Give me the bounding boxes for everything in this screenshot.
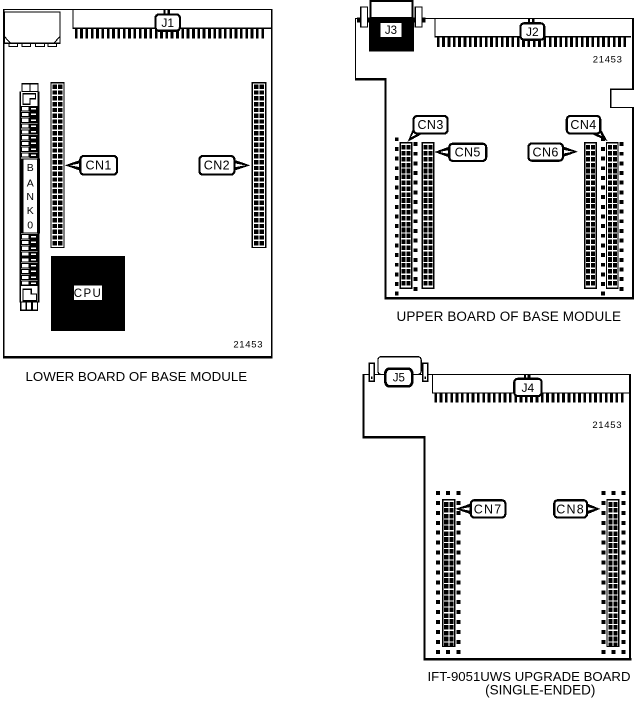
svg-text:0: 0 (27, 220, 33, 232)
svg-text:(SINGLE-ENDED): (SINGLE-ENDED) (485, 683, 595, 698)
svg-text:K: K (27, 205, 34, 217)
svg-text:21453: 21453 (233, 340, 263, 351)
svg-text:CN2: CN2 (204, 159, 230, 173)
svg-text:A: A (27, 177, 34, 189)
svg-text:J2: J2 (526, 25, 539, 39)
svg-text:CN3: CN3 (417, 118, 443, 132)
svg-text:J3: J3 (385, 25, 397, 37)
svg-text:J1: J1 (161, 16, 174, 30)
svg-text:21453: 21453 (593, 55, 623, 66)
svg-text:CN6: CN6 (533, 146, 559, 160)
svg-text:J4: J4 (522, 381, 535, 395)
svg-text:J5: J5 (393, 373, 405, 385)
svg-text:B: B (27, 162, 34, 174)
svg-text:CN4: CN4 (570, 118, 596, 132)
svg-text:LOWER BOARD OF BASE MODULE: LOWER BOARD OF BASE MODULE (25, 369, 247, 384)
svg-text:21453: 21453 (592, 420, 622, 431)
svg-text:CN8: CN8 (556, 502, 585, 516)
svg-text:CN7: CN7 (474, 502, 503, 516)
svg-text:CN1: CN1 (86, 159, 112, 173)
svg-text:UPPER BOARD OF BASE MODULE: UPPER BOARD OF BASE MODULE (396, 309, 621, 324)
svg-text:CN5: CN5 (455, 146, 481, 160)
svg-text:CPU: CPU (74, 288, 102, 300)
svg-text:N: N (26, 191, 34, 203)
